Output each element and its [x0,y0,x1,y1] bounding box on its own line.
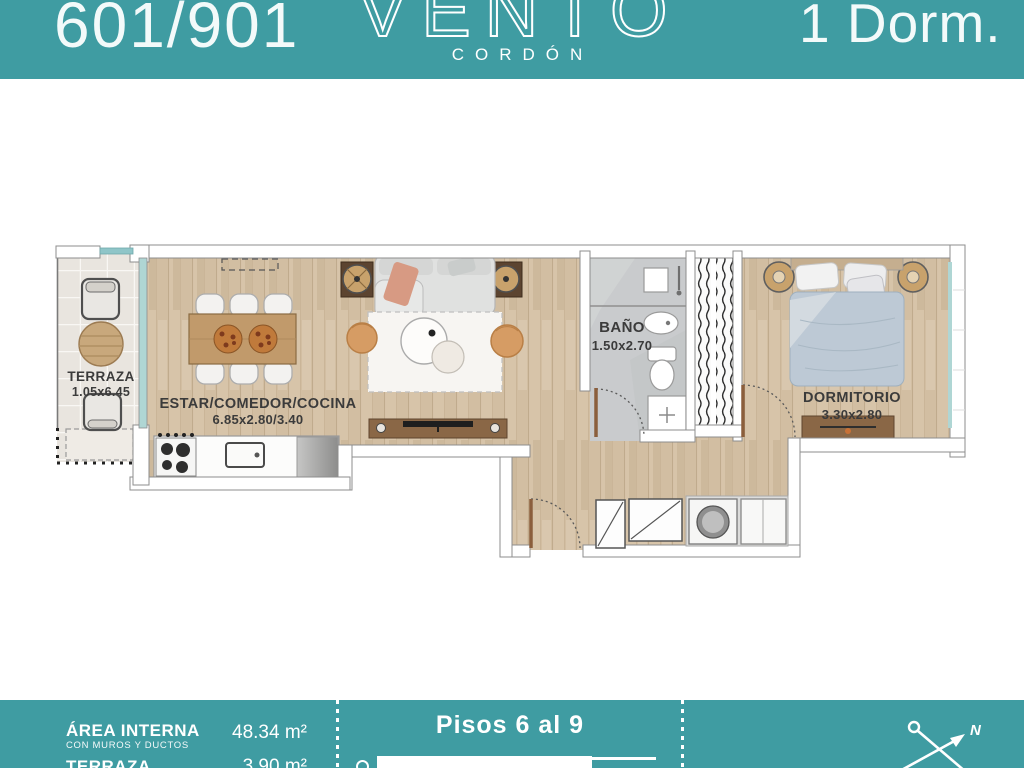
terrace-dashed-zone [66,429,133,460]
building-diagram-circle [356,760,369,768]
terrace-table [79,322,123,366]
room-label-bano: BAÑO [599,318,645,336]
terraza-label: TERRAZA [66,757,151,768]
room-dims-dormitorio: 3.30x2.80 [822,407,883,422]
food-plate [249,325,277,353]
room-dims-estar: 6.85x2.80/3.40 [213,412,304,427]
area-interna-value: 48.34 m² [195,722,307,744]
brand-subtitle: CORDÓN [352,45,682,65]
laundry-entry [596,496,788,548]
area-interna-label: ÁREA INTERNA [66,721,200,741]
header-bar: 601/901 VENTO CORDÓN 1 Dorm. [0,0,1024,79]
building-diagram [377,756,592,768]
stove [156,438,196,476]
tv-icon [403,421,473,427]
pouf [347,323,377,353]
floors-label: Pisos 6 al 9 [338,711,682,740]
compass-arrow [950,734,965,747]
sofa [375,254,495,318]
toilet-icon [650,360,674,390]
appliance [297,437,338,477]
floorplan-sheet: { "colors": { "accent_teal": "#3F9CA2", … [0,0,1024,768]
footer-bar: ÁREA INTERNA CON MUROS Y DUCTOS 48.34 m²… [0,700,1024,768]
unit-number: 601/901 [54,0,299,59]
shower-niche [644,268,668,292]
sink-icon [644,312,678,334]
room-label-terraza: TERRAZA [67,369,134,384]
food-plate [214,325,242,353]
terrace [57,246,140,464]
terraza-value: 3.90 m² [195,756,307,768]
room-label-estar: ESTAR/COMEDOR/COCINA [159,396,356,412]
building-diagram-line [592,757,656,760]
room-label-dormitorio: DORMITORIO [803,390,901,406]
terrace-glass [100,248,133,254]
kitchen-counter [154,433,339,478]
tv-console [369,419,507,438]
compass-north-label: N [970,722,982,739]
bedroom-window [948,262,952,428]
compass-icon: N [884,702,1024,768]
dining-set [189,294,296,384]
closet [695,251,733,425]
glass-wall [139,258,147,428]
unit-type-label: 1 Dorm. [799,0,1002,53]
area-interna-sublabel: CON MUROS Y DUCTOS [66,740,189,751]
terrace-chair-top [82,279,119,319]
floor-plan: TERRAZA 1.05x6.45 ESTAR/COMEDOR/COCINA 6… [0,80,1024,700]
terrace-chair-bottom [84,394,121,430]
pouf [491,325,523,357]
room-dims-terraza: 1.05x6.45 [72,385,130,399]
room-dims-bano: 1.50x2.70 [592,338,653,353]
